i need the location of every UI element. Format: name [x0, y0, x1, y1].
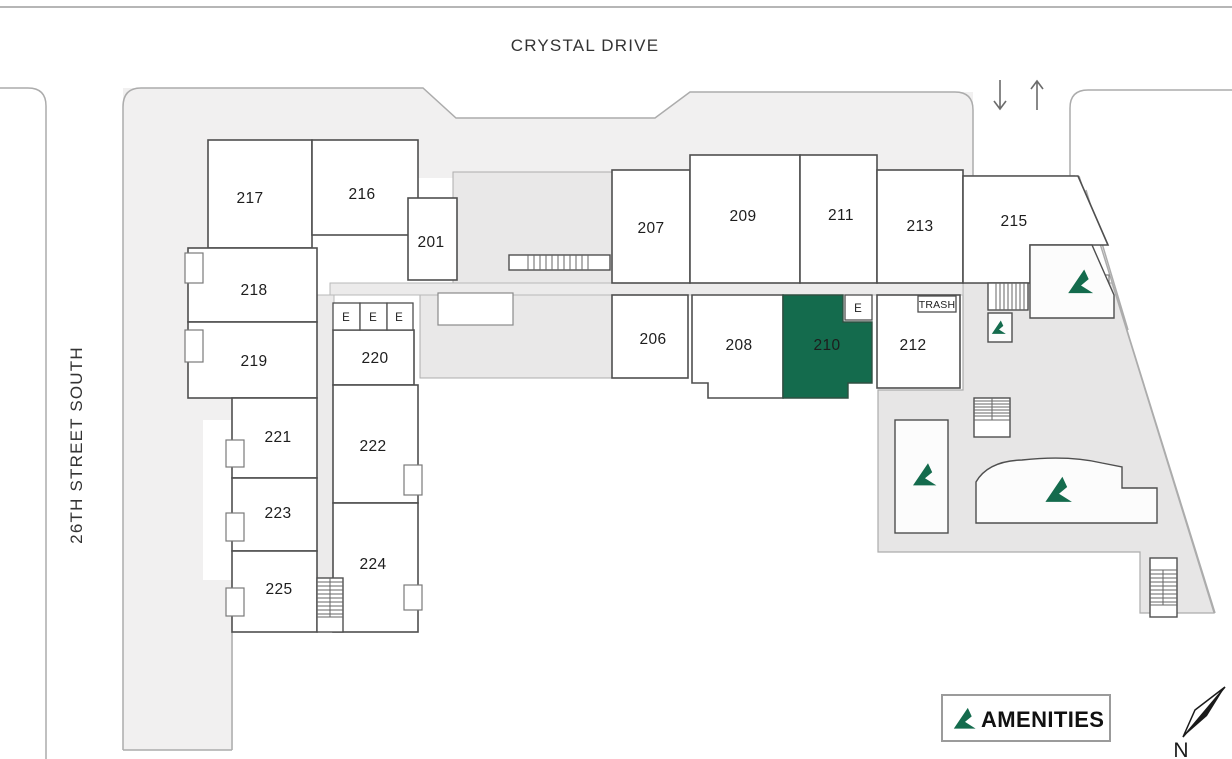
- unit-label: 222: [359, 438, 386, 455]
- compass: N: [1173, 687, 1225, 759]
- street-curb-left: [0, 88, 46, 759]
- legend-label: AMENITIES: [981, 707, 1104, 732]
- driveway-up-arrow-icon: [1031, 81, 1043, 110]
- unit-label: 213: [906, 218, 933, 235]
- unit-label: 216: [348, 186, 375, 203]
- unit-label-selected: 210: [813, 337, 840, 354]
- unit-label: 217: [236, 190, 263, 207]
- unit-label: 224: [359, 556, 386, 573]
- balcony-tab: [404, 465, 422, 495]
- balcony-tab: [226, 588, 244, 616]
- site-plan: 217 216 201 207 209 211 213 215 218 219 …: [0, 0, 1232, 759]
- amenities-legend: AMENITIES: [942, 695, 1110, 741]
- street-label-left: 26TH STREET SOUTH: [67, 346, 86, 544]
- unit-label: 209: [729, 208, 756, 225]
- balcony-tab: [404, 585, 422, 610]
- unit-label: 207: [637, 220, 664, 237]
- compass-label: N: [1173, 739, 1188, 759]
- stairs-icon: [988, 283, 1028, 310]
- elevator-label: E: [342, 312, 350, 324]
- unit-label: 219: [240, 353, 267, 370]
- unit-label: 225: [265, 581, 292, 598]
- balcony-tab: [226, 440, 244, 467]
- unit-label: 221: [264, 429, 291, 446]
- unit-label: 201: [417, 234, 444, 251]
- elevator-label: E: [854, 303, 862, 315]
- stairs-icon: [1150, 558, 1177, 617]
- street-label-top: CRYSTAL DRIVE: [511, 36, 660, 55]
- unit-label: 215: [1000, 213, 1027, 230]
- elevator-label: E: [369, 312, 377, 324]
- unit-label: 206: [639, 331, 666, 348]
- floor-plan-svg: 217 216 201 207 209 211 213 215 218 219 …: [0, 0, 1232, 759]
- stairs-icon: [974, 398, 1010, 437]
- balcony-tab: [185, 253, 203, 283]
- stairs-icon: [509, 255, 610, 270]
- stairs-icon: [317, 578, 343, 632]
- trash-label: TRASH: [919, 299, 956, 311]
- unit-label: 218: [240, 282, 267, 299]
- street-curb-top-right: [1070, 90, 1232, 176]
- unit-label: 220: [361, 350, 388, 367]
- unit-label: 223: [264, 505, 291, 522]
- amenity-room-upper: [1030, 245, 1114, 318]
- unit-label: 212: [899, 337, 926, 354]
- unit-label: 211: [828, 207, 854, 224]
- driveway-down-arrow-icon: [994, 80, 1006, 109]
- balcony-tab: [226, 513, 244, 541]
- elevator-label: E: [395, 312, 403, 324]
- balcony-tab: [185, 330, 203, 362]
- unit-label: 208: [725, 337, 752, 354]
- corridor-horizontal: [330, 283, 963, 295]
- courtyard-structure: [438, 293, 513, 325]
